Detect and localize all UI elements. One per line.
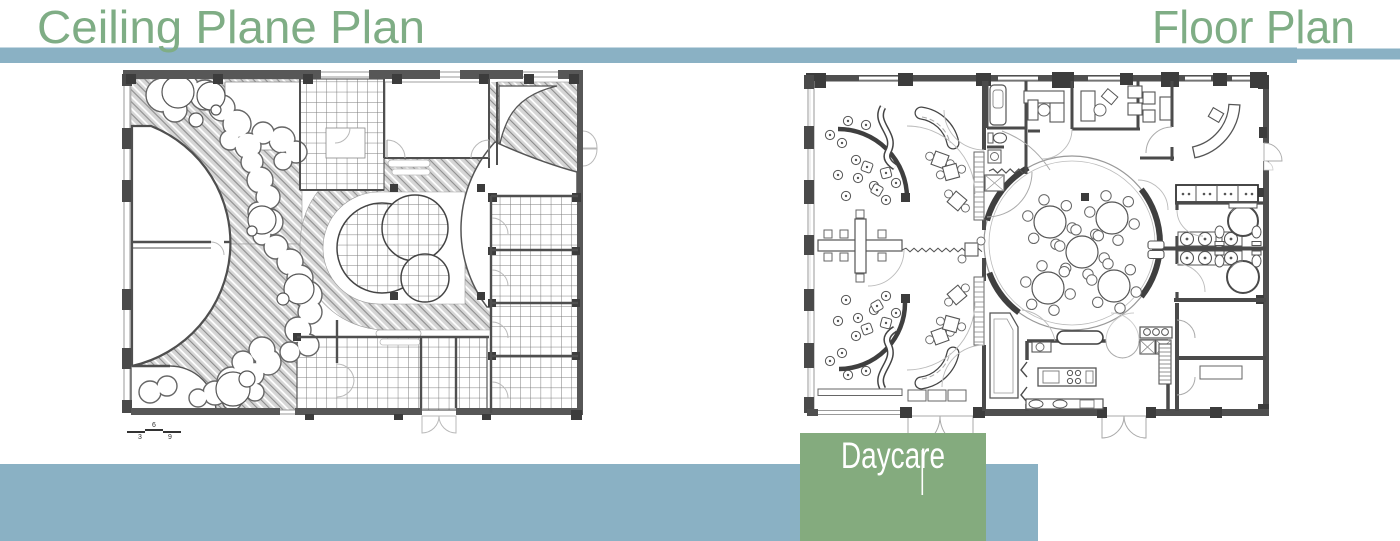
svg-text:Ceiling Plane Plan: Ceiling Plane Plan <box>37 1 425 53</box>
svg-text:6: 6 <box>152 422 156 429</box>
svg-text:9: 9 <box>168 434 172 441</box>
svg-text:Daycare: Daycare <box>841 435 945 476</box>
svg-text:Floor Plan: Floor Plan <box>1152 1 1355 53</box>
svg-text:3: 3 <box>138 434 142 441</box>
